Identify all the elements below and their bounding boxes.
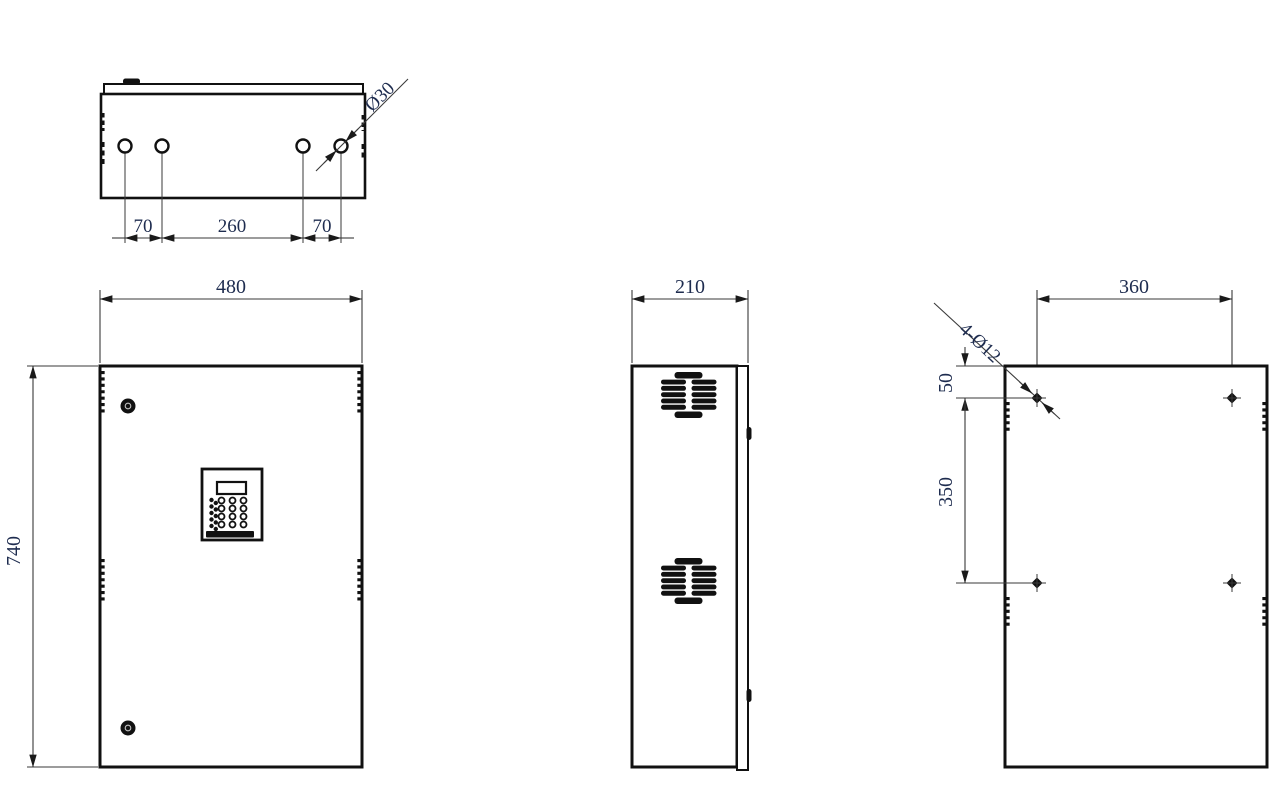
dim-label-gland-diameter: Ø30: [361, 78, 399, 116]
keypad-button: [209, 498, 213, 502]
front-view: 480 740: [3, 276, 362, 767]
keypad-display: [217, 482, 246, 494]
keypad-button: [241, 514, 247, 520]
front-door-panel: [100, 366, 362, 767]
dim-label-hole-top-offset: 50: [935, 373, 957, 393]
dim-label-hole-pitch-left: 70: [134, 216, 153, 237]
cable-gland-hole: [119, 140, 132, 153]
rear-body: [1005, 366, 1267, 767]
keypad-button: [209, 524, 213, 528]
dim-label-hole-pitch-center: 260: [218, 216, 247, 237]
keypad-button: [241, 522, 247, 528]
drawing-sheet: 70 260 70 Ø30 480 740: [0, 0, 1287, 789]
keypad-button: [230, 522, 236, 528]
keypad-button: [209, 504, 213, 508]
cable-gland-hole: [297, 140, 310, 153]
keypad-button: [219, 506, 225, 512]
side-view: 210: [632, 276, 752, 770]
keypad-button: [230, 498, 236, 504]
rear-view: 360 50 350 4-Ø12: [934, 276, 1267, 767]
keypad-button: [214, 520, 218, 524]
keypad-button: [219, 514, 225, 520]
keypad-button: [214, 507, 218, 511]
cable-gland-hole: [156, 140, 169, 153]
keypad-button: [230, 506, 236, 512]
keypad-button: [219, 498, 225, 504]
keypad-button: [209, 511, 213, 515]
keypad-button: [230, 514, 236, 520]
keypad-button: [241, 506, 247, 512]
side-door-edge: [737, 366, 748, 770]
keypad-panel: [202, 469, 262, 540]
dim-label-hole-row-spacing: 350: [935, 477, 957, 507]
dim-label-height: 740: [3, 536, 25, 566]
dim-label-hole-span: 360: [1119, 276, 1149, 298]
drawing-canvas: 70 260 70 Ø30 480 740: [0, 0, 1287, 789]
dim-label-width: 480: [216, 276, 246, 298]
top-view: 70 260 70 Ø30: [101, 78, 408, 243]
top-view-hinge-bump: [123, 79, 140, 85]
screw-head: [121, 721, 136, 736]
dim-label-mounting-holes: 4-Ø12: [955, 319, 1005, 367]
keypad-bottom-bar: [206, 531, 254, 538]
keypad-button: [214, 501, 218, 505]
door-lock-screw: [121, 721, 136, 736]
keypad-button: [214, 514, 218, 518]
screw-head: [121, 399, 136, 414]
keypad-button: [241, 498, 247, 504]
hinge-bump: [747, 689, 752, 702]
keypad-button: [219, 522, 225, 528]
keypad-button: [214, 527, 218, 531]
door-lock-screw: [121, 399, 136, 414]
top-view-lid-strip: [104, 84, 363, 94]
top-view-body: [101, 94, 365, 198]
dim-label-hole-pitch-right: 70: [313, 216, 332, 237]
leader-line: [934, 303, 1060, 419]
keypad-button: [209, 517, 213, 521]
dim-label-depth: 210: [675, 276, 705, 298]
hinge-bump: [747, 427, 752, 440]
